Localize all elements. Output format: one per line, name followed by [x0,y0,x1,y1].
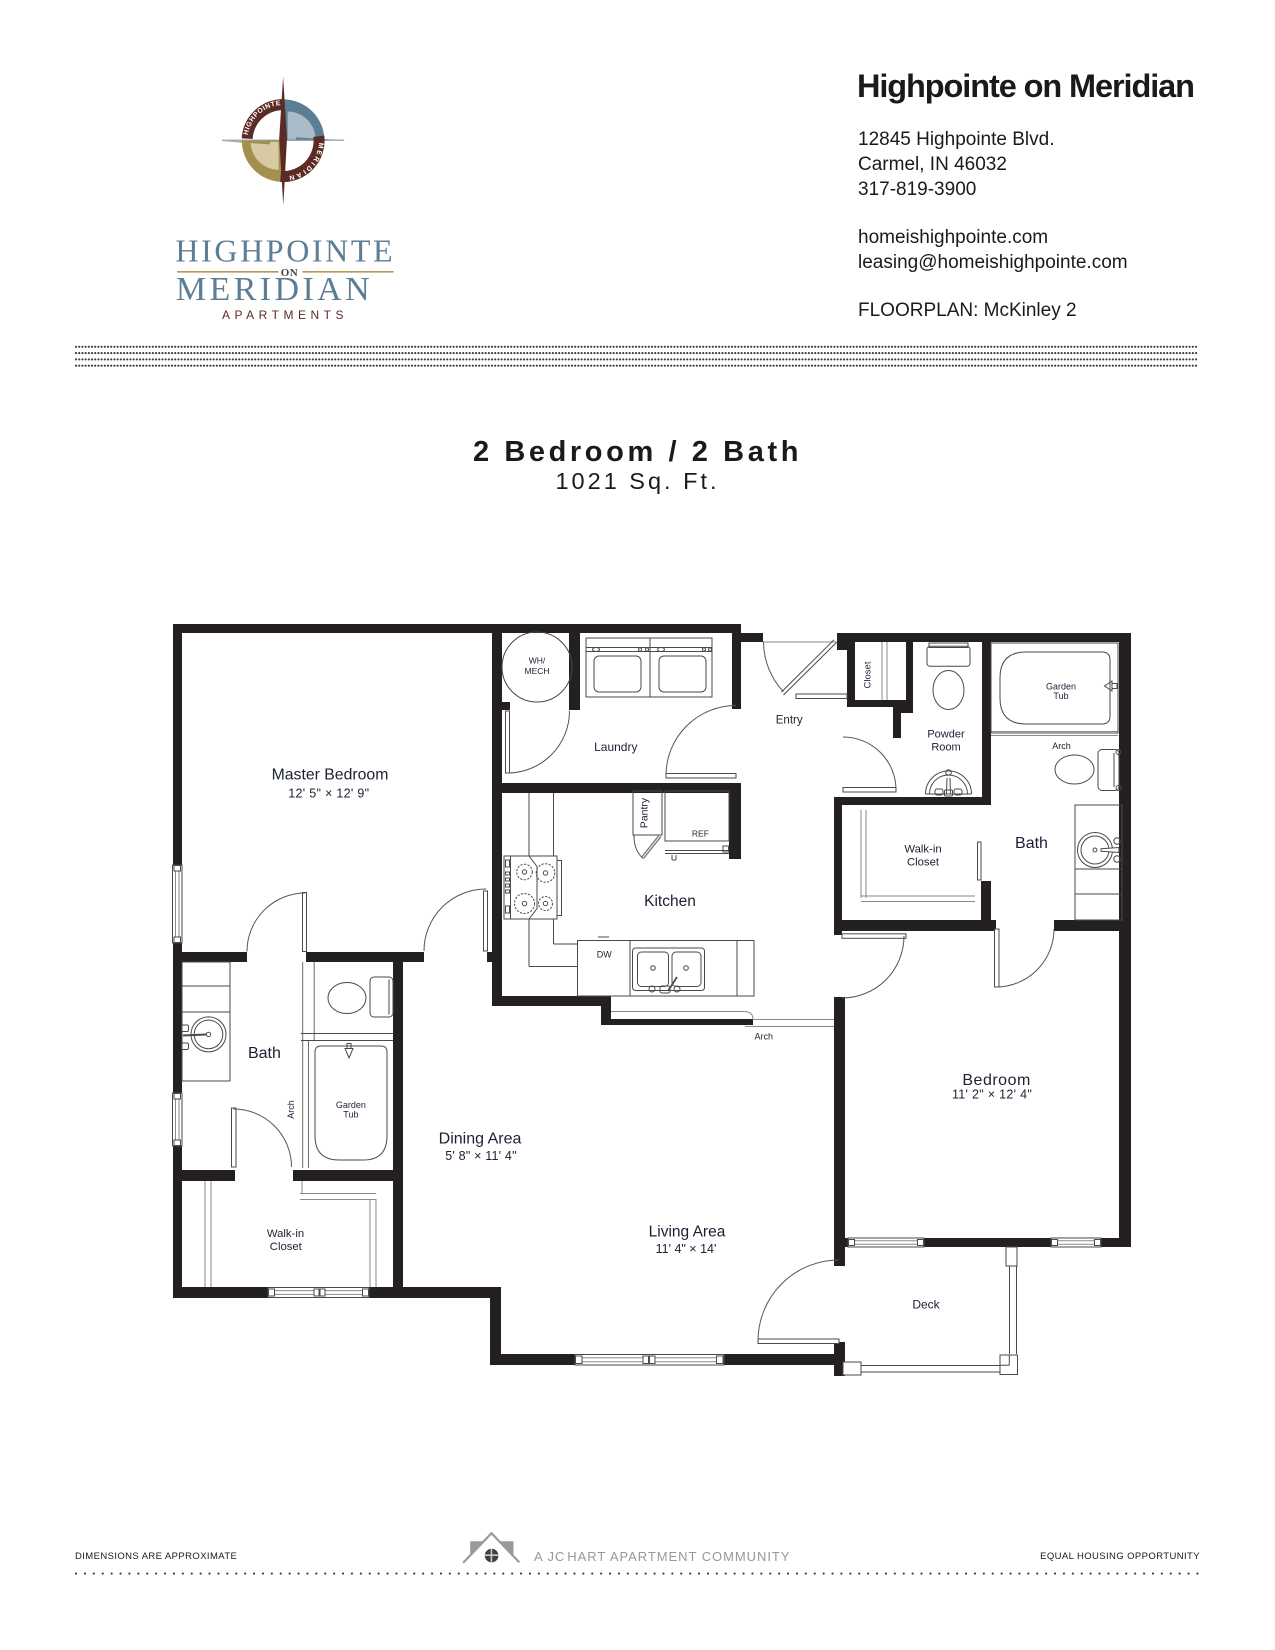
svg-text:Arch: Arch [286,1100,296,1119]
svg-text:APARTMENTS: APARTMENTS [222,308,348,322]
svg-text:Tub: Tub [343,1110,358,1120]
svg-text:Arch: Arch [1052,741,1071,751]
svg-text:11' 2" × 12' 4": 11' 2" × 12' 4" [952,1088,1032,1102]
svg-text:11' 4" × 14': 11' 4" × 14' [656,1242,717,1256]
svg-text:Entry: Entry [776,715,803,727]
svg-text:12' 5" × 12' 9": 12' 5" × 12' 9" [288,787,369,801]
svg-text:DW: DW [597,950,612,960]
svg-text:Dining Area: Dining Area [439,1131,522,1148]
svg-text:Garden: Garden [336,1100,366,1110]
svg-text:Powder: Powder [927,729,965,741]
svg-text:Bath: Bath [1015,835,1048,852]
svg-text:Bedroom: Bedroom [962,1072,1030,1089]
svg-text:Closet: Closet [863,661,874,688]
svg-text:Kitchen: Kitchen [644,893,696,910]
svg-text:HIGHPOINTE: HIGHPOINTE [175,233,395,269]
svg-text:WH/: WH/ [529,656,546,666]
svg-text:Living Area: Living Area [649,1224,726,1241]
svg-text:Pantry: Pantry [639,797,651,828]
svg-text:5' 8" × 11' 4": 5' 8" × 11' 4" [445,1149,516,1163]
svg-text:Closet: Closet [907,857,940,869]
svg-text:Walk-in: Walk-in [904,844,941,856]
svg-text:Tub: Tub [1053,691,1068,701]
svg-text:Garden: Garden [1046,681,1076,691]
svg-text:Closet: Closet [270,1241,303,1253]
svg-text:Laundry: Laundry [594,740,637,754]
svg-text:REF: REF [692,829,709,839]
svg-text:MECH: MECH [524,666,549,676]
svg-text:Master Bedroom: Master Bedroom [272,767,389,784]
svg-text:M: M [316,142,324,149]
svg-text:Room: Room [931,742,960,754]
svg-text:Bath: Bath [248,1045,281,1062]
svg-text:Deck: Deck [912,1298,940,1312]
svg-text:MERIDIAN: MERIDIAN [176,271,373,308]
svg-text:Walk-in: Walk-in [267,1228,304,1240]
svg-text:Arch: Arch [755,1032,774,1042]
